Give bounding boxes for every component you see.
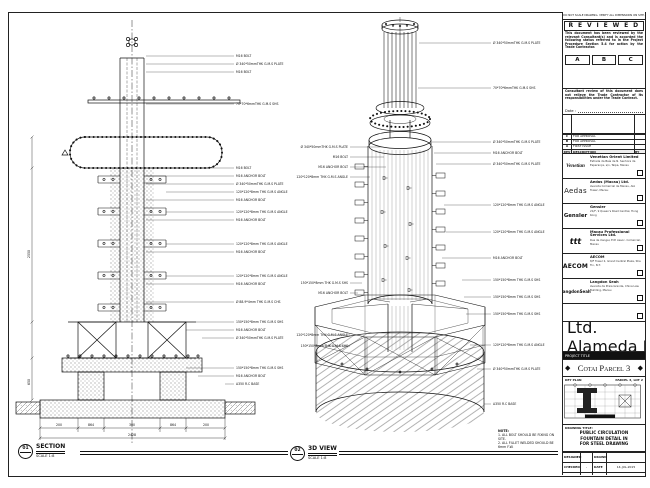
callout-label: 150*150*8mm THK G.M.S SHS (301, 281, 348, 285)
stamp-checkbox (637, 195, 643, 201)
company-address: Avenida da Praia Grande, China Law Build… (590, 285, 644, 291)
company-address: Estrada da Baía de N. Senhora da Esperan… (590, 160, 644, 166)
fluted-column (368, 146, 432, 304)
callout-label: A350 R.C BASE (236, 382, 259, 386)
drawing-title-line: FOR STEEL DRAWING (565, 441, 643, 447)
info-row: CHECKED - DATE 14-JUL-2015 (563, 462, 645, 472)
view-number-bubble: 02 (290, 446, 305, 461)
callout-label: Ø 340*50mmTHK G.M.S PLATE (236, 61, 283, 66)
dim-label: 864 (170, 423, 176, 427)
callout-label: Ø 340*50mmTHK G.M.S PLATE (493, 161, 540, 166)
callout-label: M16 BOLT (236, 166, 251, 170)
callout-label: 120*120*8mm THK G.M.S ANGLE (493, 343, 545, 347)
callout-label: M16 BOLT (333, 155, 348, 159)
callout-label: Ø 340*50mmTHK G.M.S PLATE (236, 335, 283, 340)
ornament-icon: ◆ (565, 364, 570, 372)
callout-label: A350 R.C BASE (493, 402, 516, 406)
reviewed-paragraph-2: Consultant review of this document does … (563, 89, 645, 106)
callout-label: Ø 340*50mmTHK G.M.S PLATE (236, 181, 283, 186)
status-b: B (592, 55, 617, 65)
callout-label: 150*150*8mm THK G.M.S SHS (236, 320, 283, 324)
gensler-logo: Gensler (563, 204, 588, 228)
3d-view-drawing: Ø 340*50mmTHK G.M.S PLATE 70*70*6mmTHK G… (292, 16, 558, 448)
dim-label: 864 (88, 423, 94, 427)
venetian-logo: Venetian (563, 154, 588, 178)
key-plan-right-label: PARCEL 3, LOT 2 (615, 378, 643, 382)
company-address: Rua de Xangai, Edf. Assoc. Comercial, Ma… (590, 239, 644, 245)
stamp-checkbox (637, 270, 643, 276)
consultant-box-langdonseah: LangdonSeah Langdon Seah Avenida da Prai… (563, 279, 645, 304)
contractor-address: Alameda Dr. Carlos D'Assumpção, Macau (567, 337, 645, 353)
leader-lines (146, 56, 234, 384)
callout-label: M16 BOLT (236, 70, 251, 74)
view-scale: SCALE 1:8 (308, 456, 337, 460)
callout-label: Ø 340*50mmTHK G.M.S PLATE (493, 40, 540, 45)
foundation-slab (40, 400, 225, 418)
company-name: Macau Professional Services Ltd. (590, 231, 644, 239)
section-callouts: M16 BOLT Ø 340*50mmTHK G.M.S PLATE M16 B… (27, 54, 288, 437)
mps-logo: ttt (563, 229, 588, 253)
plate-bolts (93, 97, 230, 99)
stamp-checkbox (637, 295, 643, 301)
callout-label: Ø 340*50mmTHK G.M.S PLATE (493, 366, 540, 371)
callout-label: 70*70*6mmTHK G.M.S SHS (236, 102, 278, 106)
callout-label: 150*150*8mm THK G.M.S SHS (236, 366, 283, 370)
date-value-line (578, 108, 643, 113)
title-block: DO NOT SCALE DRAWING. VERIFY ALL DIMENSI… (562, 12, 645, 475)
dim-label: 200 (203, 423, 209, 427)
view-number: 01 (20, 447, 30, 453)
pedestal-boxes (68, 322, 196, 358)
callout-label: Ø 340*50mmTHK G.M.S PLATE (493, 139, 540, 144)
ground-left (16, 402, 40, 414)
callout-label: 120*120*8mm THK G.M.S ANGLE (493, 203, 545, 207)
status-boxes: A B C (563, 54, 645, 66)
view-number: 02 (292, 449, 302, 455)
callout-label: M16 ANCHOR BOLT (493, 256, 523, 260)
callout-label: M16 ANCHOR BOLT (318, 165, 348, 169)
langdonseah-logo: LangdonSeah (563, 279, 588, 303)
pier-left (78, 372, 104, 400)
key-plan-drawing (563, 383, 642, 421)
consultant-box-mps: ttt Macau Professional Services Ltd. Rua… (563, 229, 645, 254)
contractor-box: Hsin Chong Construction (Macau) Co., Ltd… (563, 322, 645, 352)
section-view-drawing: M16 BOLT Ø 340*50mmTHK G.M.S PLATE M16 B… (10, 14, 290, 460)
reviewed-title: R E V I E W E D (564, 21, 644, 31)
view-name: SECTION (36, 444, 65, 454)
ground-right (225, 402, 255, 414)
callout-label: 120*120*8mm THK G.M.S ANGLE (236, 210, 288, 214)
date-label: Date : (565, 109, 576, 113)
callout-label: M16 ANCHOR BOLT (493, 151, 523, 155)
pier-right (160, 372, 186, 400)
view-name: 3D VIEW (308, 446, 337, 456)
stamp-checkbox (637, 313, 643, 319)
key-plan-label: KEY PLAN (565, 378, 582, 382)
callout-label: M16 ANCHOR BOLT (236, 198, 266, 202)
stamp-checkbox (637, 170, 643, 176)
callout-label: 70*70*6mmTHK G.M.S SHS (493, 86, 535, 90)
callout-label: M16 BOLT (236, 54, 251, 58)
status-c: C (618, 55, 643, 65)
project-title: ◆ Cotai Parcel 3 ◆ (563, 360, 645, 377)
dim-label: 2550 (27, 250, 31, 258)
callout-label: Ø 340*50mmTHK G.M.S PLATE (301, 144, 348, 149)
callout-label: 150*150*8mm THK G.M.S SHS (493, 295, 540, 299)
view-number-bubble: 01 (18, 444, 33, 459)
do-not-scale-note: DO NOT SCALE DRAWING. VERIFY ALL DIMENSI… (563, 12, 645, 20)
ornament-icon: ◆ (638, 364, 643, 372)
dim-label: 300 (129, 423, 135, 427)
company-address: 21/F, 9 Queen's Road Central, Hong Kong (590, 210, 644, 216)
aecom-logo: AECOM (563, 254, 588, 278)
stamp-checkbox (637, 245, 643, 251)
callout-label: M16 ANCHOR BOLT (236, 282, 266, 286)
scalloped-collar (370, 111, 430, 131)
drawing-sheet: M16 BOLT Ø 340*50mmTHK G.M.S PLATE M16 B… (0, 0, 650, 488)
dim-total-label: 2428 (128, 433, 136, 437)
general-notes: NOTE: 1. ALL BOLT SHOULD BE FIXING ON SI… (498, 429, 562, 449)
callout-label: M16 ANCHOR BOLT (318, 291, 348, 295)
reviewed-paragraph: This document has been reviewed by the r… (563, 31, 645, 54)
callout-label: Ø 88.9*4mm THK G.M.S CHS (236, 299, 281, 304)
callout-label: M16 ANCHOR BOLT (236, 218, 266, 222)
section-view-label: 01 SECTION SCALE 1:8 (16, 444, 67, 459)
info-row: APPROVED - SCALE AS SHOWN (563, 472, 645, 475)
company-address: Avenida Comercial de Macau, AIA Tower, M… (590, 185, 644, 191)
revision-rows: C FOR APPROVAL B FOR APPROVAL A FIRST IS… (563, 134, 645, 149)
dim-label: 650 (27, 379, 31, 385)
callout-label: M16 ANCHOR BOLT (236, 328, 266, 332)
company-address: 8/F Tower 2, Grand Central Plaza, Sha Ti… (590, 260, 644, 266)
beam-bolts (67, 355, 199, 357)
callout-label: 120*120*8mm THK G.M.S ANGLE (236, 274, 288, 278)
callout-label: M16 ANCHOR BOLT (236, 374, 266, 378)
3d-view-label: 02 3D VIEW SCALE 1:8 (288, 446, 339, 461)
cloud-band (62, 137, 222, 168)
key-plan: KEY PLAN PARCEL 3, LOT 2 (563, 377, 645, 425)
date-row: Date : (563, 106, 645, 114)
note-line: 1. ALL BOLT SHOULD BE FIXING ON SITE. (498, 433, 562, 441)
callout-label: 120*120*8mm THK G.M.S ANGLE (236, 190, 288, 194)
callout-label: 120*120*8mm THK G.M.S ANGLE (493, 230, 545, 234)
consultant-box-gensler: Gensler Gensler 21/F, 9 Queen's Road Cen… (563, 204, 645, 229)
contractor-name: Hsin Chong Construction (Macau) Co., Ltd… (567, 322, 645, 337)
drawing-title-box: DRAWING TITLE: PUBLIC CIRCULATION FOUNTA… (563, 425, 645, 452)
3d-geometry (315, 17, 491, 432)
stamp-checkbox (637, 220, 643, 226)
status-a: A (565, 55, 590, 65)
info-row: DESIGNED DRAWN (563, 452, 645, 462)
callout-label: M16 ANCHOR BOLT (236, 174, 266, 178)
callout-label: 150*150*8mm THK G.M.S SHS (301, 344, 348, 348)
dim-label: 200 (56, 423, 62, 427)
pipe-cluster (384, 32, 416, 108)
consultant-box-aedas: Aedas Aedas (Macau) Ltd. Avenida Comerci… (563, 179, 645, 204)
callout-label: 120*120*8mm THK G.M.S ANGLE (236, 242, 288, 246)
base-beam (62, 358, 202, 372)
note-line: 2. ALL FILLET WELDED SHOULD BE 6mm F.W. (498, 441, 562, 449)
reviewed-stamp: R E V I E W E D This document has been r… (563, 20, 645, 89)
callout-label: 150*150*8mm THK G.M.S SHS (493, 278, 540, 282)
callout-label: 150*150*8mm THK G.M.S SHS (493, 312, 540, 316)
project-title-bar: PROJECT TITLE (563, 352, 645, 360)
callout-label: 120*120*8mm THK G.M.S ANGLE (296, 175, 348, 179)
revision-triangle-icon (62, 150, 68, 155)
view-scale: SCALE 1:8 (36, 454, 65, 458)
revision-table-empty (563, 114, 645, 134)
spare-stamp-box (563, 304, 645, 322)
callout-label: M16 ANCHOR BOLT (236, 250, 266, 254)
aedas-logo: Aedas (563, 179, 588, 203)
project-title-text: Cotai Parcel 3 (578, 363, 630, 373)
consultant-box-aecom: AECOM AECOM 8/F Tower 2, Grand Central P… (563, 254, 645, 279)
consultant-box-venetian: Venetian Venetian Orient Limited Estrada… (563, 154, 645, 179)
concrete-core (110, 168, 154, 322)
callout-label: 120*120*8mm THK G.M.S ANGLE (296, 333, 348, 337)
section-geometry (16, 20, 255, 444)
